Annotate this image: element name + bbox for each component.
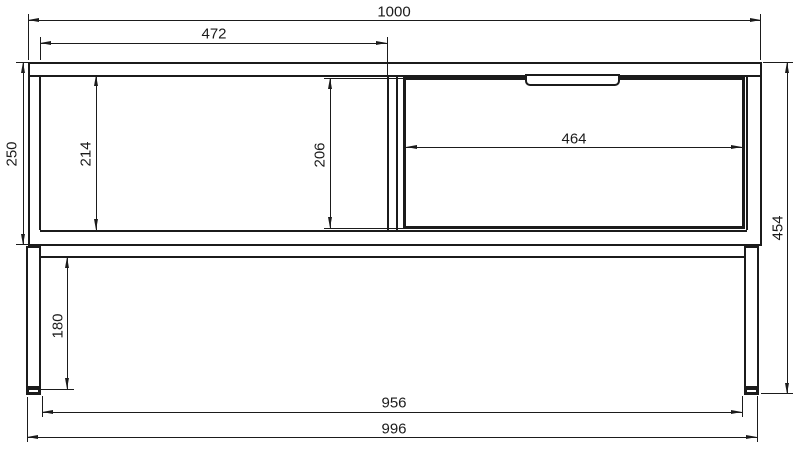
dimension-line — [787, 62, 788, 394]
extension-line — [41, 389, 74, 390]
arrowhead-right-icon — [731, 145, 742, 149]
right-panel-inner-line — [746, 77, 748, 230]
left-leg — [26, 246, 41, 388]
arrowhead-right-icon — [750, 18, 761, 22]
dim-label-leg-height: 180 — [51, 313, 66, 338]
dimension-line — [67, 257, 68, 389]
extension-line — [324, 228, 403, 229]
arrowhead-left-icon — [28, 18, 39, 22]
arrowhead-left-icon — [40, 41, 51, 45]
dimension-line — [42, 412, 742, 413]
arrowhead-right-icon — [746, 435, 757, 439]
left-panel-inner-line — [39, 77, 41, 230]
arrowhead-up-icon — [21, 62, 25, 73]
arrowhead-up-icon — [785, 62, 789, 73]
technical-drawing-canvas: 1000 472 464 250 214 206 — [0, 0, 800, 453]
dim-label-legs-outer-span: 996 — [381, 422, 406, 437]
arrowhead-down-icon — [785, 383, 789, 394]
dim-label-left-compartment-width: 472 — [201, 27, 226, 42]
arrowhead-down-icon — [94, 219, 98, 230]
arrowhead-left-icon — [42, 410, 53, 414]
left-foot — [26, 387, 41, 395]
arrowhead-up-icon — [328, 78, 332, 89]
arrowhead-down-icon — [21, 234, 25, 245]
drawer-handle-notch — [525, 74, 620, 86]
bottom-panel-top-line — [40, 230, 747, 232]
extension-line — [742, 396, 743, 417]
arrowhead-down-icon — [65, 378, 69, 389]
dimension-line — [96, 75, 97, 230]
dim-label-overall-height: 454 — [771, 215, 786, 240]
right-foot — [744, 387, 759, 395]
dim-label-overall-width: 1000 — [377, 5, 410, 20]
dim-label-cabinet-height: 250 — [5, 141, 20, 166]
dimension-line — [23, 62, 24, 245]
arrowhead-left-icon — [406, 145, 417, 149]
arrowhead-up-icon — [65, 257, 69, 268]
dim-label-drawer-front-height: 206 — [313, 142, 328, 167]
dimension-line — [40, 43, 387, 44]
extension-line — [387, 37, 388, 76]
drawer-front — [403, 77, 745, 229]
arrowhead-left-icon — [27, 435, 38, 439]
arrowhead-up-icon — [94, 75, 98, 86]
base-rail-bottom-line — [41, 256, 745, 258]
extension-line — [757, 396, 758, 442]
divider-right-line — [396, 77, 398, 230]
extension-line — [42, 396, 43, 417]
divider-left-line — [387, 77, 389, 230]
dim-label-legs-inner-span: 956 — [381, 396, 406, 411]
arrowhead-down-icon — [328, 217, 332, 228]
dim-label-left-compartment-height: 214 — [79, 141, 94, 166]
arrowhead-right-icon — [731, 410, 742, 414]
extension-line — [324, 78, 403, 79]
dim-label-drawer-inner-width: 464 — [561, 132, 586, 147]
dimension-line — [330, 78, 331, 228]
right-leg — [744, 246, 759, 388]
arrowhead-right-icon — [376, 41, 387, 45]
